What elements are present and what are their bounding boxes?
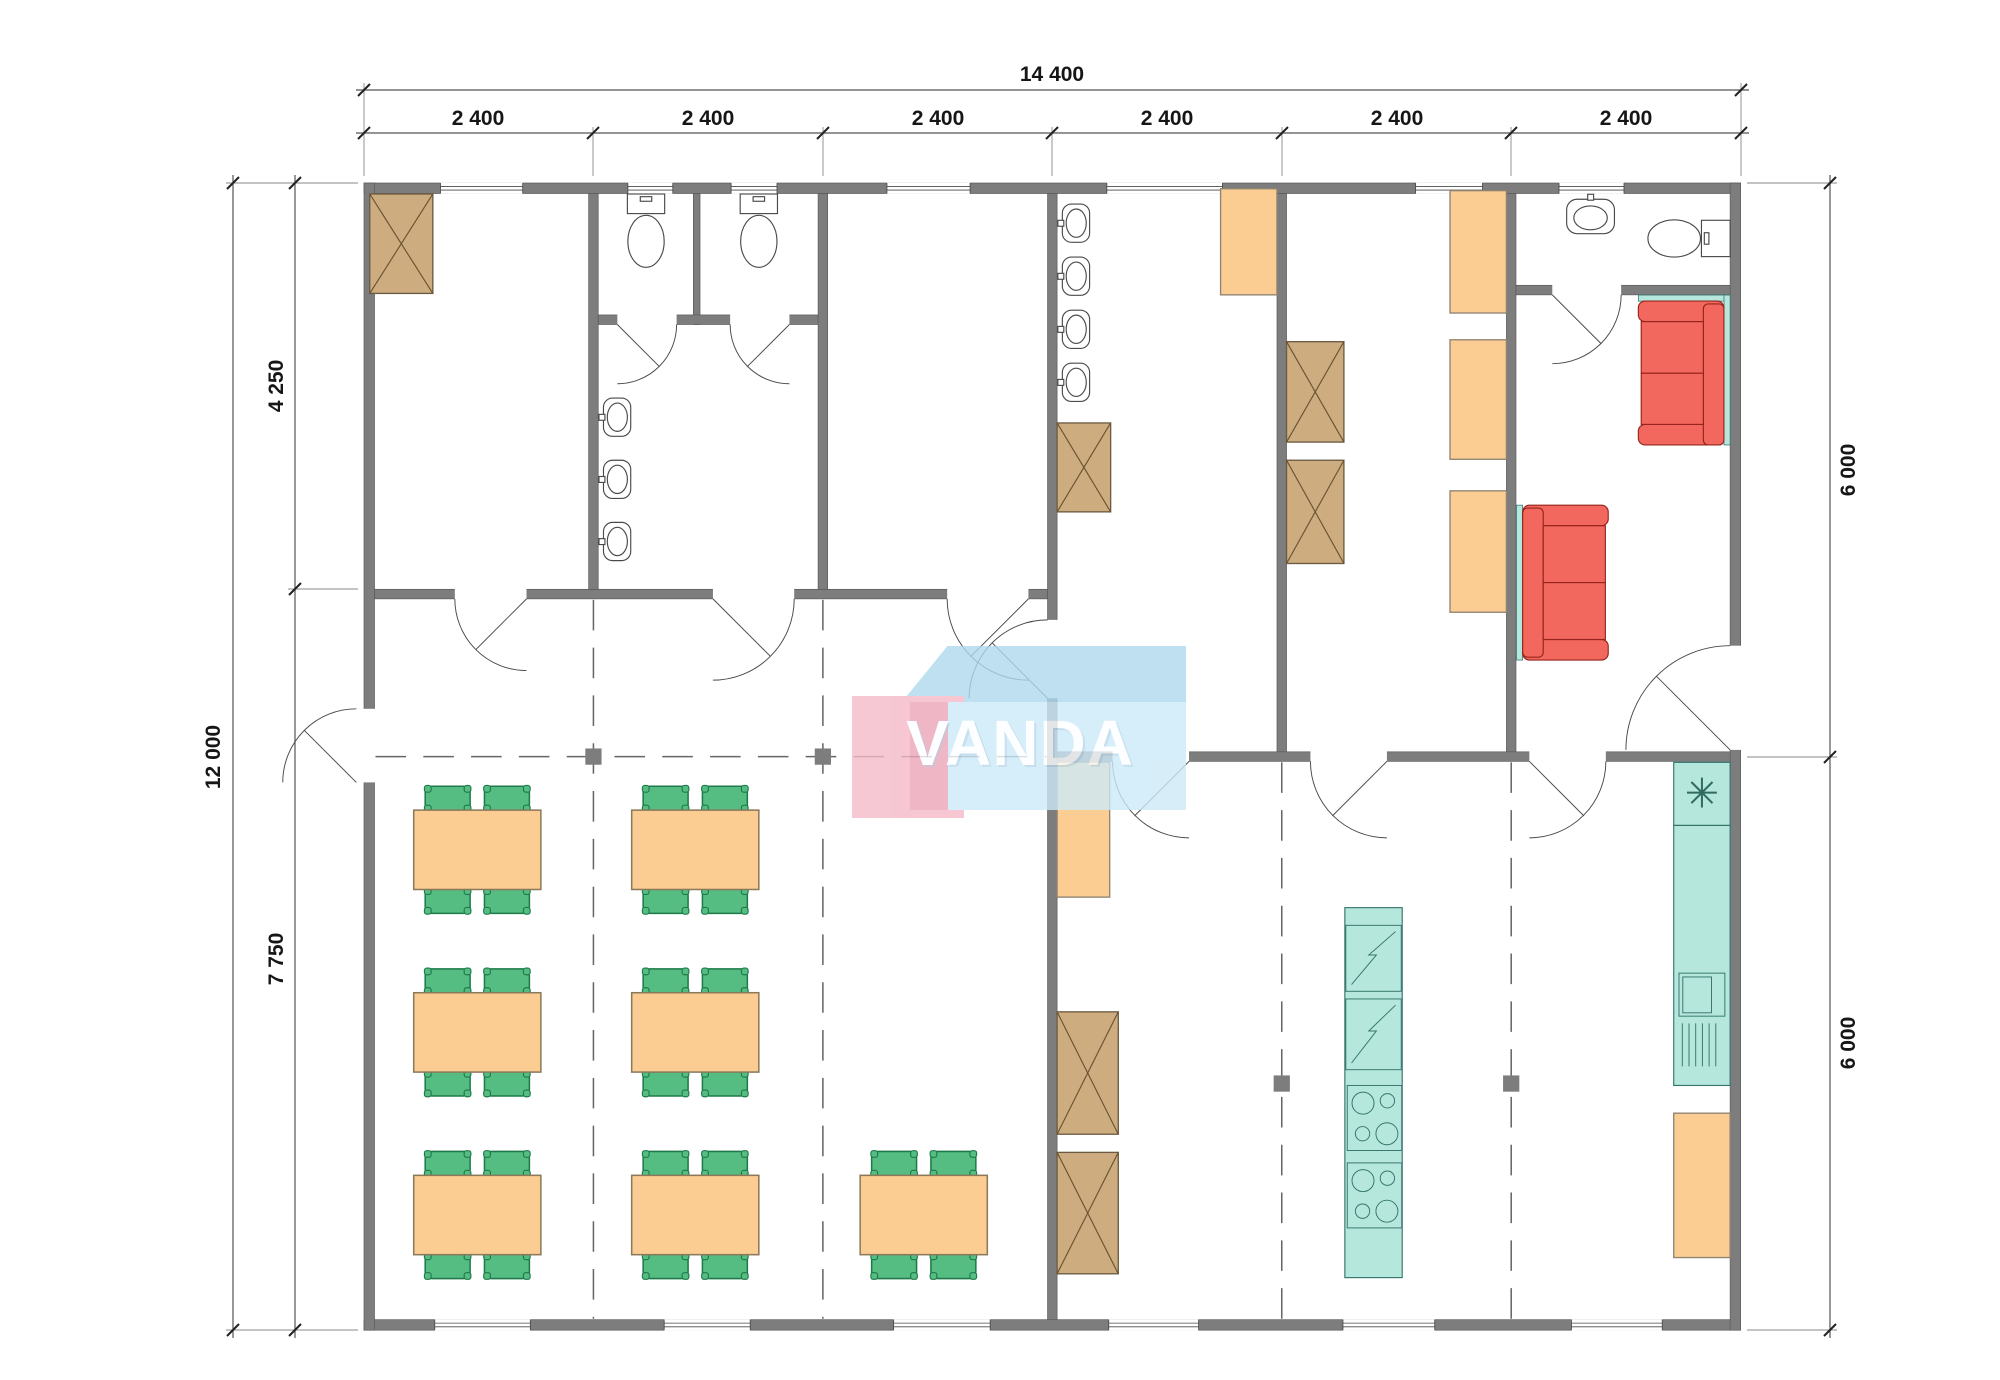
dining-table bbox=[414, 810, 541, 889]
dim-right-lower: 6 000 bbox=[1837, 1017, 1861, 1070]
dim-top-seg-5: 2 400 bbox=[1371, 107, 1424, 131]
dining-table bbox=[632, 1175, 759, 1254]
chair bbox=[424, 888, 470, 914]
watermark-blue-band bbox=[902, 646, 1186, 702]
chair bbox=[484, 785, 530, 811]
sink-icon bbox=[599, 522, 631, 560]
chair bbox=[484, 1253, 530, 1279]
cabinet bbox=[1221, 189, 1277, 295]
dim-top-seg-4: 2 400 bbox=[1141, 107, 1194, 131]
chair bbox=[424, 1151, 470, 1177]
toilet-icon bbox=[740, 194, 777, 267]
dim-top-seg-2: 2 400 bbox=[682, 107, 735, 131]
sink-icon bbox=[1567, 194, 1615, 233]
chair bbox=[642, 968, 688, 994]
chair bbox=[642, 1151, 688, 1177]
dim-left-total: 12 000 bbox=[202, 725, 226, 789]
chair bbox=[484, 1070, 530, 1096]
chair bbox=[424, 785, 470, 811]
dim-top-seg-3: 2 400 bbox=[912, 107, 965, 131]
floor-plan-page: ✳ 14 400 2 400 2 400 2 400 2 400 2 400 2… bbox=[0, 0, 2000, 1380]
lounge bbox=[1516, 194, 1730, 660]
sink-icon bbox=[1058, 310, 1090, 348]
room-topleft bbox=[370, 194, 433, 293]
wardrobe bbox=[1057, 1012, 1118, 1134]
kitchen: ✳ bbox=[1057, 762, 1730, 1277]
freezer: ✳ bbox=[1674, 762, 1730, 825]
washroom-corridor bbox=[1057, 189, 1277, 512]
cabinet bbox=[1674, 1113, 1730, 1257]
dining-area bbox=[414, 785, 988, 1279]
chair bbox=[871, 1253, 917, 1279]
chair bbox=[484, 1151, 530, 1177]
sink-icon bbox=[1058, 257, 1090, 295]
counter-with-sink bbox=[1674, 825, 1730, 1085]
chair bbox=[930, 1253, 976, 1279]
cabinet bbox=[1450, 491, 1506, 612]
cabinet bbox=[1450, 191, 1506, 313]
wardrobe bbox=[370, 194, 433, 293]
sink-icon bbox=[1058, 204, 1090, 242]
wardrobe bbox=[1287, 342, 1344, 442]
dim-top-seg-6: 2 400 bbox=[1600, 107, 1653, 131]
wardrobe bbox=[1057, 1152, 1118, 1273]
sink-icon bbox=[1058, 363, 1090, 401]
chair bbox=[484, 888, 530, 914]
watermark: VANDA bbox=[852, 640, 1188, 818]
dim-right-upper: 6 000 bbox=[1837, 444, 1861, 497]
chair bbox=[484, 968, 530, 994]
sofa bbox=[1638, 301, 1724, 445]
dim-top-seg-1: 2 400 bbox=[452, 107, 505, 131]
wardrobe bbox=[1057, 423, 1111, 512]
wardrobe bbox=[1287, 460, 1344, 563]
toilet-icon bbox=[1648, 220, 1730, 257]
sink-icon bbox=[599, 398, 631, 436]
dim-left-upper: 4 250 bbox=[265, 360, 289, 413]
chair bbox=[702, 785, 748, 811]
chair bbox=[424, 1070, 470, 1096]
cabinet bbox=[1450, 340, 1506, 460]
chair bbox=[702, 1151, 748, 1177]
chair bbox=[930, 1151, 976, 1177]
chair bbox=[702, 888, 748, 914]
chair bbox=[871, 1151, 917, 1177]
dining-table bbox=[860, 1175, 987, 1254]
storage-room bbox=[1287, 191, 1507, 613]
toilet-block bbox=[599, 194, 777, 561]
chair bbox=[424, 968, 470, 994]
chair bbox=[642, 888, 688, 914]
chair bbox=[642, 785, 688, 811]
toilet-icon bbox=[627, 194, 664, 267]
chair bbox=[642, 1253, 688, 1279]
watermark-logo-text: VANDA bbox=[858, 706, 1182, 780]
dim-top-total: 14 400 bbox=[1020, 63, 1084, 87]
dining-table bbox=[632, 810, 759, 889]
sofa bbox=[1523, 505, 1609, 660]
chair bbox=[702, 968, 748, 994]
dining-table bbox=[414, 1175, 541, 1254]
sink-icon bbox=[599, 460, 631, 498]
dim-left-lower: 7 750 bbox=[265, 933, 289, 986]
dining-table bbox=[414, 993, 541, 1072]
chair bbox=[702, 1253, 748, 1279]
chair bbox=[642, 1070, 688, 1096]
chair bbox=[702, 1070, 748, 1096]
kitchen-island bbox=[1345, 908, 1402, 1278]
dining-table bbox=[632, 993, 759, 1072]
freezer-icon: ✳ bbox=[1685, 771, 1719, 817]
chair bbox=[424, 1253, 470, 1279]
